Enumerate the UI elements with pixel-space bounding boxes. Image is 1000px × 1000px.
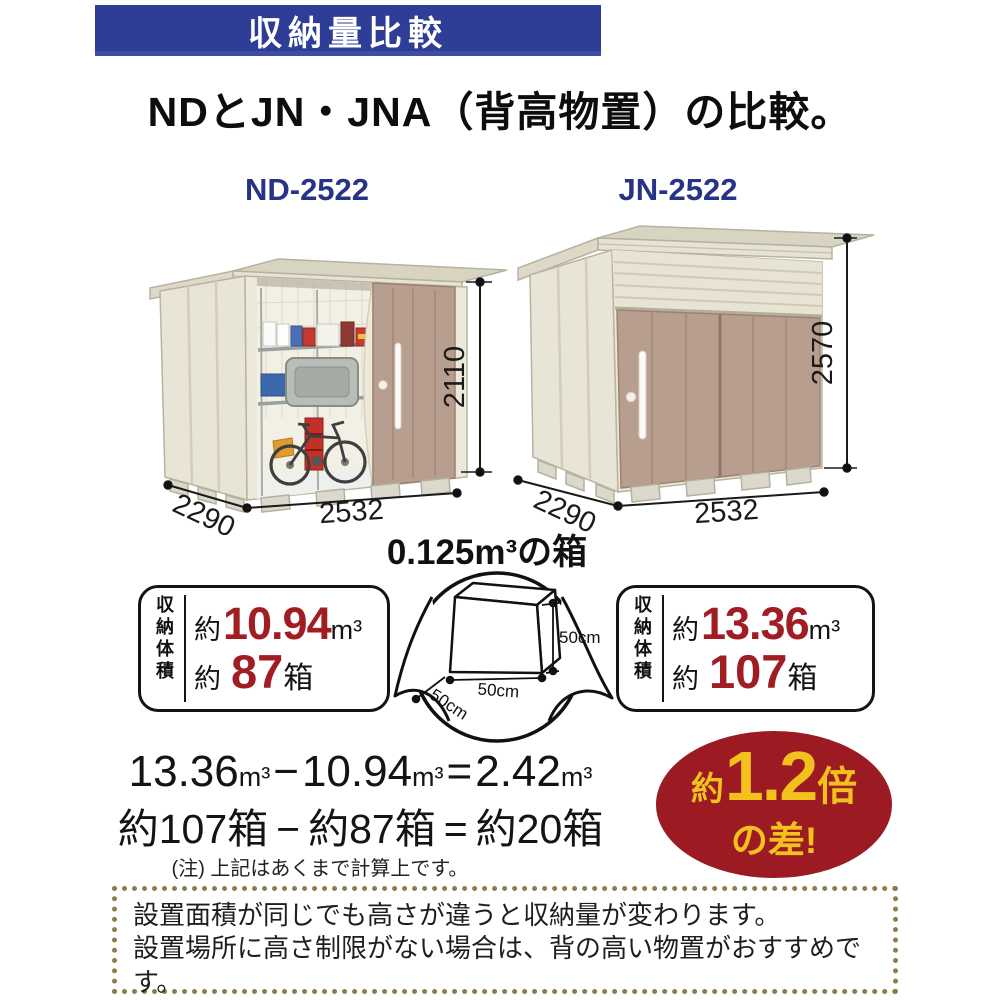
nd-door-lock xyxy=(379,381,388,390)
jn-volume-row: 約 13.36 m³ xyxy=(672,600,864,647)
eq-term: 約107箱 xyxy=(118,806,268,852)
footer-line: 設置場所に高さ制限がない場合は、背の高い物置がおすすめです。 xyxy=(133,932,877,999)
boxes-difference-equation: 約107箱−約87箱=約20箱 xyxy=(88,795,633,855)
badge-line2: の差! xyxy=(731,810,817,864)
eq-value: 13.36 xyxy=(129,747,239,796)
nd-boxes-value: 87 xyxy=(231,647,283,696)
eq-unit: m³ xyxy=(412,762,443,792)
nd-volume-row: 約 10.94 m³ xyxy=(194,600,379,647)
cube-height-label: 50cm xyxy=(559,628,601,647)
minus-sign: − xyxy=(276,806,300,852)
approx-prefix: 約 xyxy=(194,665,221,693)
eq-unit: m³ xyxy=(239,762,270,792)
nd-volume-panel: 収納体積 約 10.94 m³ 約 87 箱 xyxy=(138,585,390,712)
jn-shed-illustration: 2570 2290 2532 xyxy=(505,216,900,535)
badge-value: 1.2 xyxy=(725,745,816,808)
jn-volume-side-label: 収納体積 xyxy=(629,593,655,704)
eq-value: 10.94 xyxy=(302,747,412,796)
jn-width-dimension: 2532 xyxy=(693,494,760,530)
nd-boxes-row: 約 87 箱 xyxy=(194,647,379,696)
eq-unit: m³ xyxy=(561,762,592,792)
eq-term: 約20箱 xyxy=(476,806,604,852)
difference-badge: 約 1.2 倍 の差! xyxy=(656,731,892,878)
nd-volume-unit: m³ xyxy=(331,616,362,644)
nd-side-wall xyxy=(160,276,247,500)
page-title: NDとJN・JNA（背高物置）の比較。 xyxy=(0,78,1000,138)
minus-sign: − xyxy=(273,747,299,796)
footer-advice-box: 設置面積が同じでも高さが違うと収納量が変わります。 設置場所に高さ制限がない場合… xyxy=(112,886,898,994)
eq-value: 2.42 xyxy=(475,747,561,796)
volume-difference-equation: 13.36m³−10.94m³=2.42m³ xyxy=(88,747,633,797)
header-banner: 収納量比較 xyxy=(95,5,601,56)
jn-boxes-row: 約 107 箱 xyxy=(672,647,864,696)
nd-model-label: ND-2522 xyxy=(232,172,382,208)
approx-prefix: 約 xyxy=(672,616,699,644)
equals-sign: = xyxy=(444,806,468,852)
jn-boxes-value: 107 xyxy=(709,647,787,696)
jn-volume-value: 13.36 xyxy=(701,600,809,647)
badge-times: 倍 xyxy=(817,769,857,805)
badge-line1: 約 1.2 倍 xyxy=(691,745,857,808)
nd-interior xyxy=(257,277,373,499)
jn-door-handle xyxy=(639,351,646,439)
approx-prefix: 約 xyxy=(194,616,221,644)
cube-width-label: 50cm xyxy=(477,680,520,702)
nd-boxes-unit: 箱 xyxy=(283,663,313,695)
jn-height-dimension: 2570 xyxy=(807,321,839,386)
nd-door-handle xyxy=(395,343,401,429)
jn-boxes-unit: 箱 xyxy=(787,663,817,695)
nd-volume-value: 10.94 xyxy=(223,600,331,647)
jn-volume-panel: 収納体積 約 13.36 m³ 約 107 箱 xyxy=(616,585,875,712)
reference-cube xyxy=(450,583,560,673)
header-banner-label: 収納量比較 xyxy=(248,6,448,55)
approx-prefix: 約 xyxy=(672,665,699,693)
jn-side-wall xyxy=(530,250,618,492)
calculation-note: (注) 上記はあくまで計算上です。 xyxy=(140,852,500,881)
badge-approx: 約 xyxy=(691,774,724,804)
equals-sign: = xyxy=(447,747,473,796)
nd-blue-bin xyxy=(261,374,286,396)
jn-model-label: JN-2522 xyxy=(603,172,753,208)
reference-box-callout: 50cm 50cm 50cm xyxy=(350,563,660,748)
nd-volume-side-label: 収納体積 xyxy=(151,593,177,704)
nd-volume-divider xyxy=(184,595,186,702)
jn-volume-divider xyxy=(662,595,664,702)
nd-shed-illustration: 2110 2290 2532 xyxy=(140,258,520,535)
jn-doors xyxy=(617,310,820,488)
jn-volume-unit: m³ xyxy=(809,616,840,644)
nd-height-dimension: 2110 xyxy=(439,346,471,408)
jn-door-lock xyxy=(626,392,636,402)
storage-comparison-infographic: 収納量比較 NDとJN・JNA（背高物置）の比較。 ND-2522 JN-252… xyxy=(0,0,1000,1000)
eq-term: 約87箱 xyxy=(308,806,436,852)
footer-line: 設置面積が同じでも高さが違うと収納量が変わります。 xyxy=(133,899,877,932)
